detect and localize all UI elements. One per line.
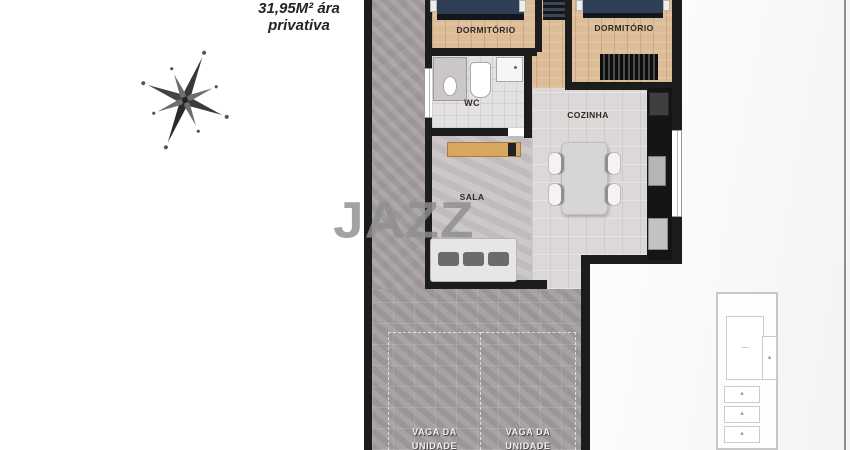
sideboard-lamp-icon bbox=[508, 143, 516, 156]
bed-left-icon bbox=[437, 0, 524, 20]
stove-icon bbox=[648, 156, 666, 186]
toilet-icon bbox=[470, 62, 491, 98]
nightstand-icon bbox=[576, 0, 583, 11]
parking-left-line1: VAGA DA bbox=[389, 427, 480, 437]
wc-bottom-wall bbox=[425, 128, 508, 136]
chair-icon bbox=[548, 183, 565, 206]
bedroom-left-label: DORMITÓRIO bbox=[436, 25, 536, 35]
bedroom-left-hall-wall bbox=[535, 0, 542, 52]
nightstand-icon bbox=[430, 0, 437, 12]
sink-icon bbox=[496, 57, 523, 82]
nightstand-icon bbox=[519, 0, 526, 12]
cabinet-drawer-icon: ▴ bbox=[724, 386, 760, 403]
sofa-cushion-icon bbox=[463, 252, 484, 266]
private-area-line2: privativa bbox=[243, 17, 355, 34]
parking-left-line2: UNIDADE bbox=[389, 441, 480, 450]
kitchen-label: COZINHA bbox=[548, 110, 628, 120]
hall-shelf-icon bbox=[543, 0, 565, 20]
bidet-icon bbox=[443, 76, 457, 96]
kitchen-window bbox=[671, 130, 682, 217]
parking-stall-right: VAGA DA UNIDADE bbox=[481, 332, 576, 450]
floor-plan-canvas: 31,95M² ára privativa bbox=[0, 0, 850, 450]
sofa-cushion-icon bbox=[488, 252, 509, 266]
chair-icon bbox=[604, 152, 621, 175]
wc-label: WC bbox=[452, 98, 492, 108]
watermark-logo: JAZZ bbox=[333, 191, 475, 250]
private-area-line1: 31,95M² ára bbox=[243, 0, 355, 17]
parking-right-line1: VAGA DA bbox=[481, 427, 575, 437]
page-edge-line bbox=[844, 0, 846, 450]
private-area-text: 31,95M² ára privativa bbox=[243, 0, 355, 34]
wardrobe-icon bbox=[600, 54, 658, 80]
chair-icon bbox=[604, 183, 621, 206]
parking-stall-left: VAGA DA UNIDADE bbox=[388, 332, 481, 450]
faucet-icon bbox=[514, 66, 517, 69]
dining-table-icon bbox=[561, 142, 608, 215]
bed-right-icon bbox=[583, 0, 663, 18]
cabinet-drawer-icon: ▴ bbox=[724, 426, 760, 443]
sofa-cushion-icon bbox=[438, 252, 459, 266]
parking-right-line2: UNIDADE bbox=[481, 441, 575, 450]
nightstand-icon bbox=[663, 0, 670, 11]
kitchen-sink-icon bbox=[648, 218, 668, 250]
hall-bedroom-right-wall bbox=[565, 0, 572, 90]
wc-top-wall bbox=[425, 48, 537, 56]
cabinet-schematic: — ▴ ▴ ▴ ▴ bbox=[716, 292, 778, 450]
cabinet-door-icon: — bbox=[726, 316, 764, 380]
cabinet-side-door-icon: ▴ bbox=[762, 336, 777, 380]
compass-rose-icon bbox=[136, 43, 234, 157]
bedroom-right-label: DORMITÓRIO bbox=[574, 23, 674, 33]
driveway-right-wall bbox=[581, 255, 590, 450]
cabinet-drawer-icon: ▴ bbox=[724, 406, 760, 423]
wc-right-wall bbox=[524, 48, 532, 138]
fridge-icon bbox=[649, 92, 669, 116]
chair-icon bbox=[548, 152, 565, 175]
